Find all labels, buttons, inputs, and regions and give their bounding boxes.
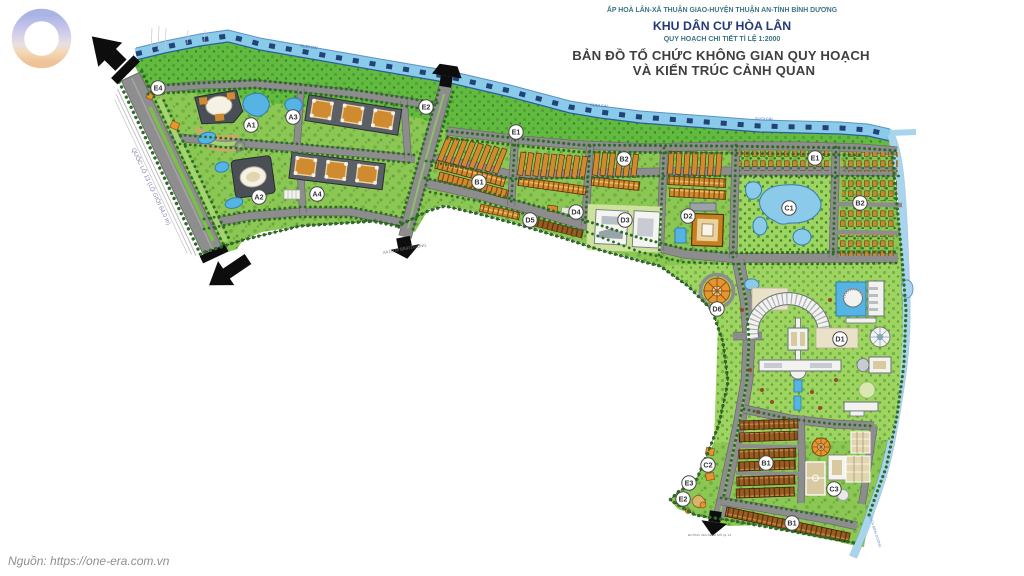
svg-text:ĐƯỜNG VEN KÊNH NỐI QL 13: ĐƯỜNG VEN KÊNH NỐI QL 13 bbox=[688, 532, 731, 537]
svg-text:D2: D2 bbox=[683, 212, 692, 221]
svg-text:D3: D3 bbox=[620, 216, 629, 225]
svg-text:C3: C3 bbox=[829, 485, 838, 494]
svg-text:C2: C2 bbox=[703, 461, 712, 470]
svg-text:SUOI CAI: SUOI CAI bbox=[755, 116, 773, 121]
svg-text:D6: D6 bbox=[712, 305, 721, 314]
svg-text:B2: B2 bbox=[855, 199, 864, 208]
svg-text:D1: D1 bbox=[835, 335, 844, 344]
svg-text:D5: D5 bbox=[525, 216, 534, 225]
svg-text:B1: B1 bbox=[474, 178, 483, 187]
svg-text:B1: B1 bbox=[761, 459, 770, 468]
svg-text:E2: E2 bbox=[422, 103, 431, 112]
svg-text:RACH BINH DUONG: RACH BINH DUONG bbox=[868, 515, 882, 548]
svg-text:C1: C1 bbox=[784, 204, 793, 213]
svg-text:A2: A2 bbox=[254, 193, 263, 202]
svg-text:A3: A3 bbox=[288, 113, 297, 122]
svg-text:E4: E4 bbox=[154, 84, 163, 93]
svg-text:E1: E1 bbox=[811, 154, 820, 163]
svg-text:E1: E1 bbox=[512, 128, 521, 137]
svg-text:B2: B2 bbox=[619, 155, 628, 164]
svg-text:A1: A1 bbox=[246, 121, 255, 130]
svg-text:E3: E3 bbox=[685, 479, 694, 488]
svg-text:D4: D4 bbox=[571, 208, 580, 217]
svg-text:B1: B1 bbox=[787, 519, 796, 528]
svg-text:A4: A4 bbox=[312, 190, 321, 199]
svg-text:E2: E2 bbox=[679, 495, 688, 504]
